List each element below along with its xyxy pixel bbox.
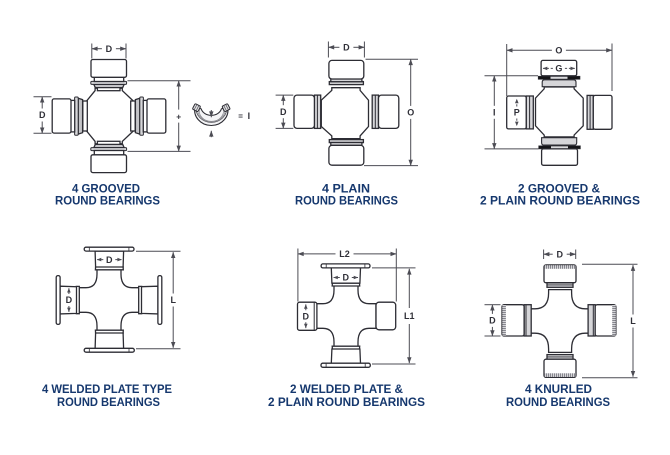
svg-text:D: D [343, 43, 350, 53]
svg-text:I: I [493, 108, 496, 118]
svg-text:2 PLAIN ROUND BEARINGS: 2 PLAIN ROUND BEARINGS [480, 194, 640, 208]
svg-text:=: = [238, 112, 243, 121]
svg-text:4 KNURLED: 4 KNURLED [525, 382, 592, 396]
svg-text:ROUND BEARINGS: ROUND BEARINGS [506, 395, 610, 409]
svg-text:ROUND BEARINGS: ROUND BEARINGS [295, 194, 398, 208]
svg-text:D: D [39, 110, 46, 120]
svg-text:4 WELDED PLATE TYPE: 4 WELDED PLATE TYPE [42, 382, 172, 396]
svg-text:ROUND BEARINGS: ROUND BEARINGS [55, 194, 160, 208]
svg-text:D: D [489, 316, 496, 326]
svg-text:D: D [106, 255, 113, 265]
svg-text:D: D [303, 311, 310, 321]
svg-text:2 PLAIN ROUND BEARINGS: 2 PLAIN ROUND BEARINGS [268, 395, 425, 409]
svg-text:I: I [248, 111, 250, 121]
svg-text:2 WELDED PLATE &: 2 WELDED PLATE & [290, 382, 403, 396]
svg-text:+: + [176, 111, 181, 121]
svg-text:L: L [170, 295, 176, 305]
svg-text:ROUND BEARINGS: ROUND BEARINGS [57, 395, 160, 409]
svg-text:L: L [630, 316, 636, 326]
svg-text:P: P [514, 108, 520, 118]
svg-text:D: D [106, 44, 113, 54]
svg-text:D: D [66, 295, 73, 305]
svg-text:O: O [407, 108, 414, 118]
svg-text:D: D [280, 107, 287, 117]
svg-text:L2: L2 [339, 249, 350, 259]
svg-text:G: G [555, 64, 562, 74]
svg-text:L1: L1 [404, 311, 415, 321]
svg-text:D: D [556, 249, 563, 259]
svg-text:D: D [343, 273, 350, 283]
svg-text:O: O [555, 46, 562, 56]
